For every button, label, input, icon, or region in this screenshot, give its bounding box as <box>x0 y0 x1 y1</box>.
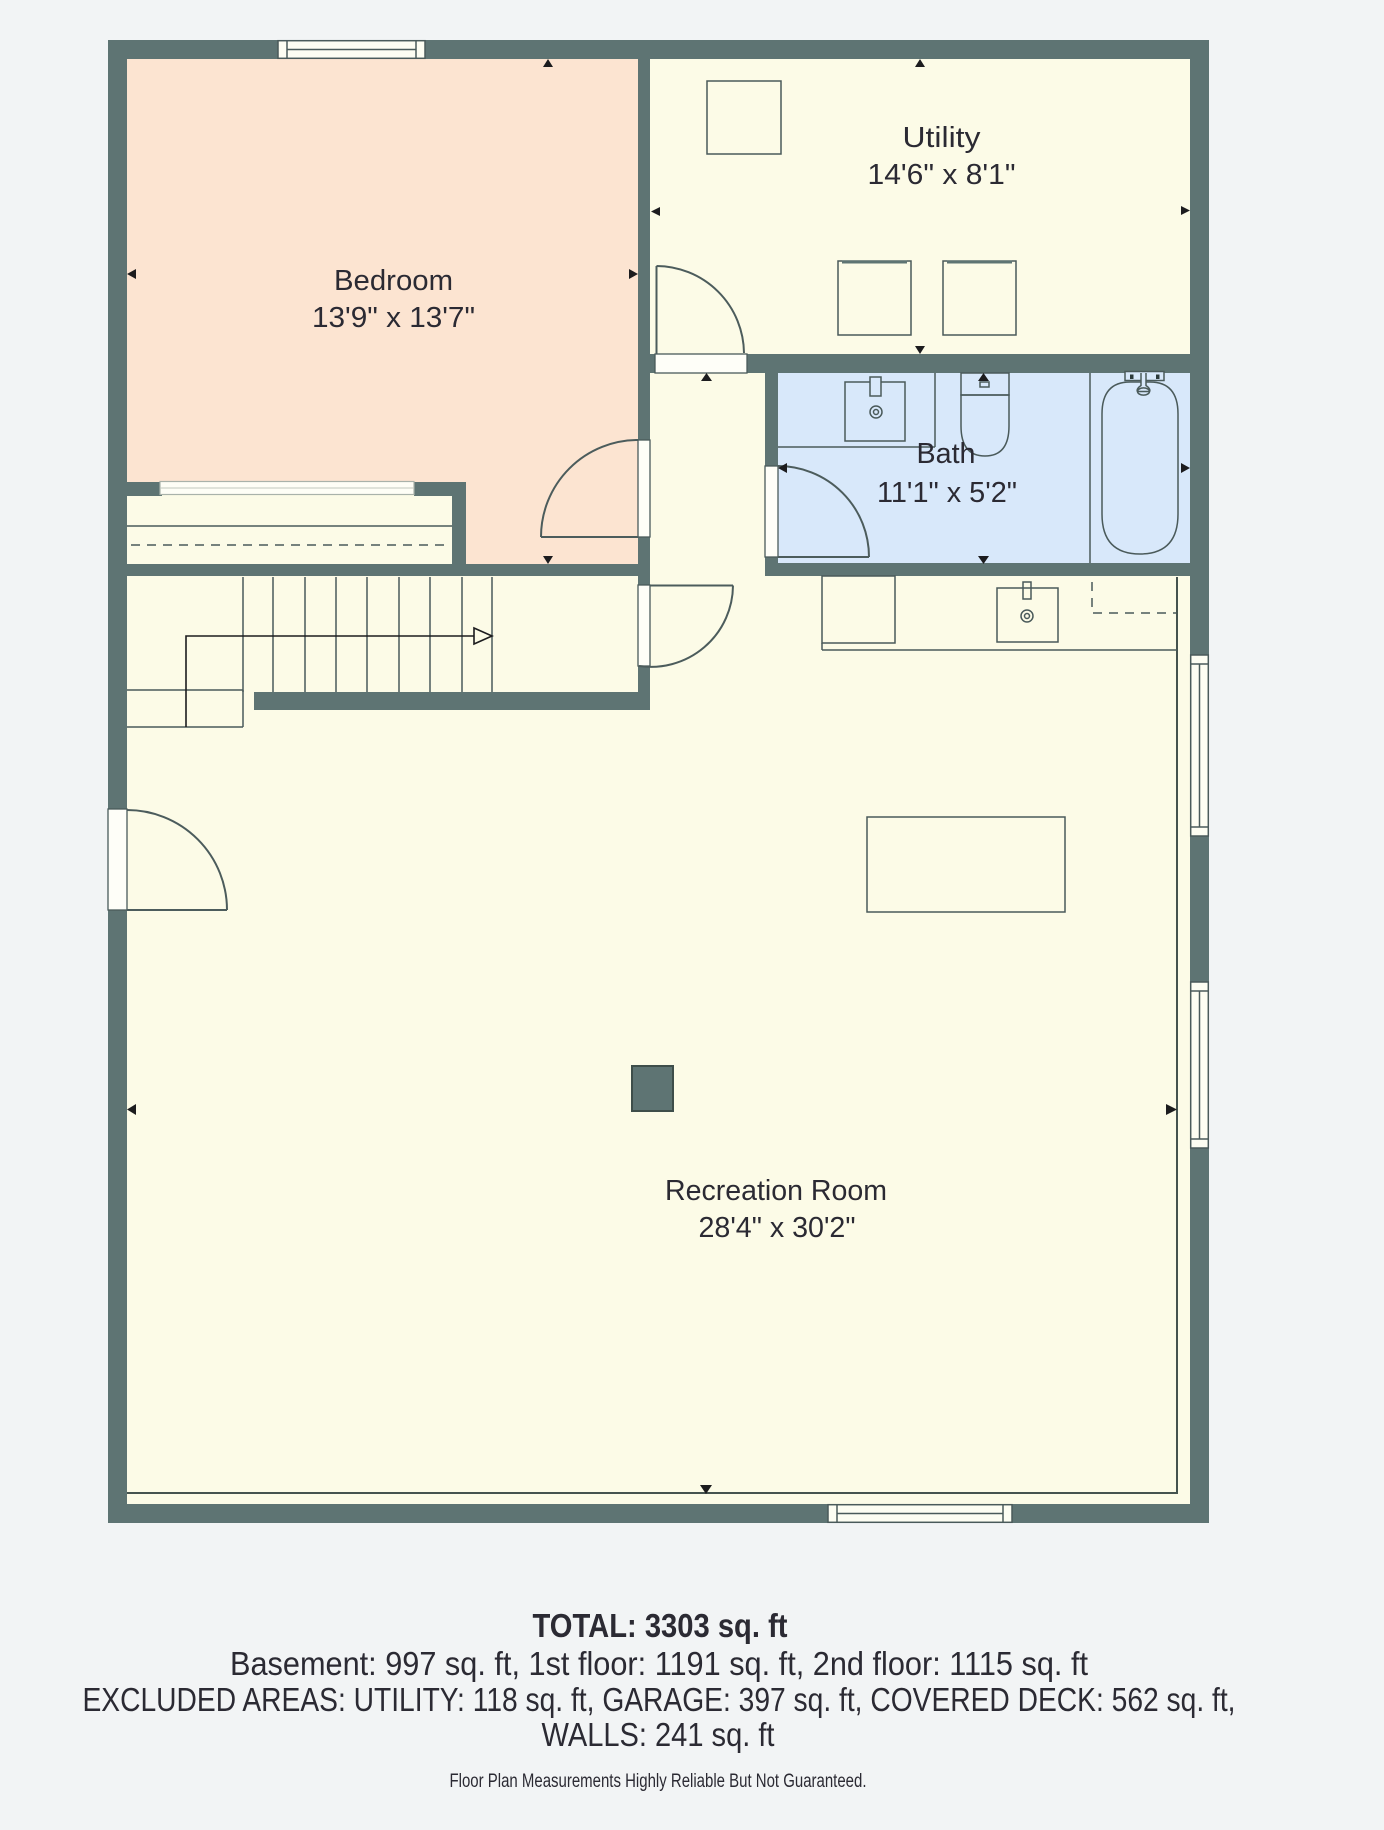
svg-text:13'9" x 13'7": 13'9" x 13'7" <box>312 302 475 334</box>
svg-text:Basement: 997 sq. ft, 1st floo: Basement: 997 sq. ft, 1st floor: 1191 sq… <box>230 1645 1088 1682</box>
svg-text:Utility: Utility <box>903 122 982 154</box>
svg-text:TOTAL: 3303 sq. ft: TOTAL: 3303 sq. ft <box>533 1607 788 1644</box>
svg-text:Bath: Bath <box>917 438 976 470</box>
svg-text:Recreation Room: Recreation Room <box>665 1175 887 1207</box>
svg-text:14'6" x 8'1": 14'6" x 8'1" <box>868 159 1016 191</box>
svg-text:11'1" x 5'2": 11'1" x 5'2" <box>877 477 1017 509</box>
svg-text:WALLS: 241 sq. ft: WALLS: 241 sq. ft <box>542 1716 775 1753</box>
svg-text:Floor Plan Measurements Highly: Floor Plan Measurements Highly Reliable … <box>450 1771 867 1792</box>
svg-text:Bedroom: Bedroom <box>334 265 453 297</box>
svg-text:EXCLUDED AREAS: UTILITY: 118 s: EXCLUDED AREAS: UTILITY: 118 sq. ft, GAR… <box>83 1681 1236 1718</box>
svg-text:28'4" x 30'2": 28'4" x 30'2" <box>699 1212 856 1244</box>
